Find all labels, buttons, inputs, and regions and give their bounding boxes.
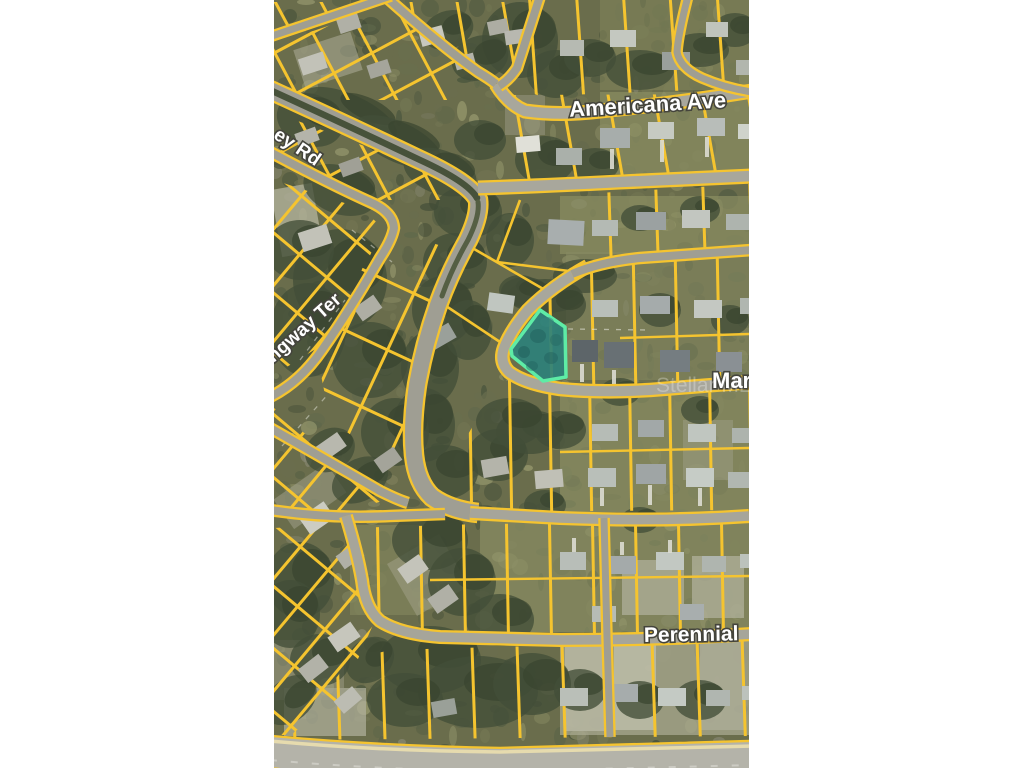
svg-text:Perennial: Perennial xyxy=(644,622,739,647)
svg-text:Stellar MLS: Stellar MLS xyxy=(656,374,765,397)
